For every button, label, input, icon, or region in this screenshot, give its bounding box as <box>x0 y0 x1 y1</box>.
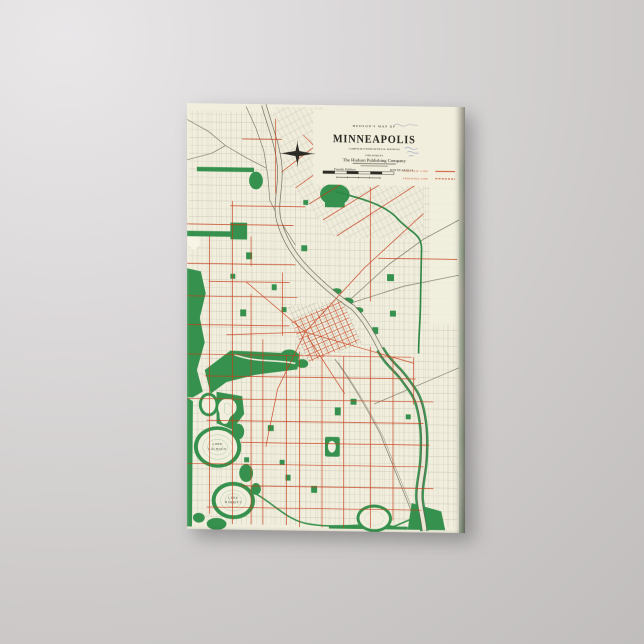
minneapolis-map: LAKE CALHOUN LAKE HARRIET <box>187 103 459 533</box>
publisher-name: The Hudson Publishing Company <box>343 157 407 163</box>
legend-item-proposed: PROPOSED LINE <box>403 178 429 180</box>
wall-background: LAKE CALHOUN LAKE HARRIET <box>0 0 644 644</box>
canvas-side-edge <box>459 107 465 533</box>
map-kicker: HUDSON'S MAP OF <box>353 125 396 129</box>
map-title: MINNEAPOLIS <box>333 131 416 146</box>
map-canvas-face: LAKE CALHOUN LAKE HARRIET <box>187 103 459 533</box>
canvas-print[interactable]: LAKE CALHOUN LAKE HARRIET <box>187 103 465 533</box>
svg-text:HARRIET: HARRIET <box>225 500 242 504</box>
lake-harriet-label: LAKE <box>228 495 238 499</box>
legend-item-electric: ELECTRIC LINE <box>403 171 429 173</box>
lake-calhoun-label: LAKE <box>212 442 222 446</box>
svg-text:CALHOUN: CALHOUN <box>208 447 227 451</box>
